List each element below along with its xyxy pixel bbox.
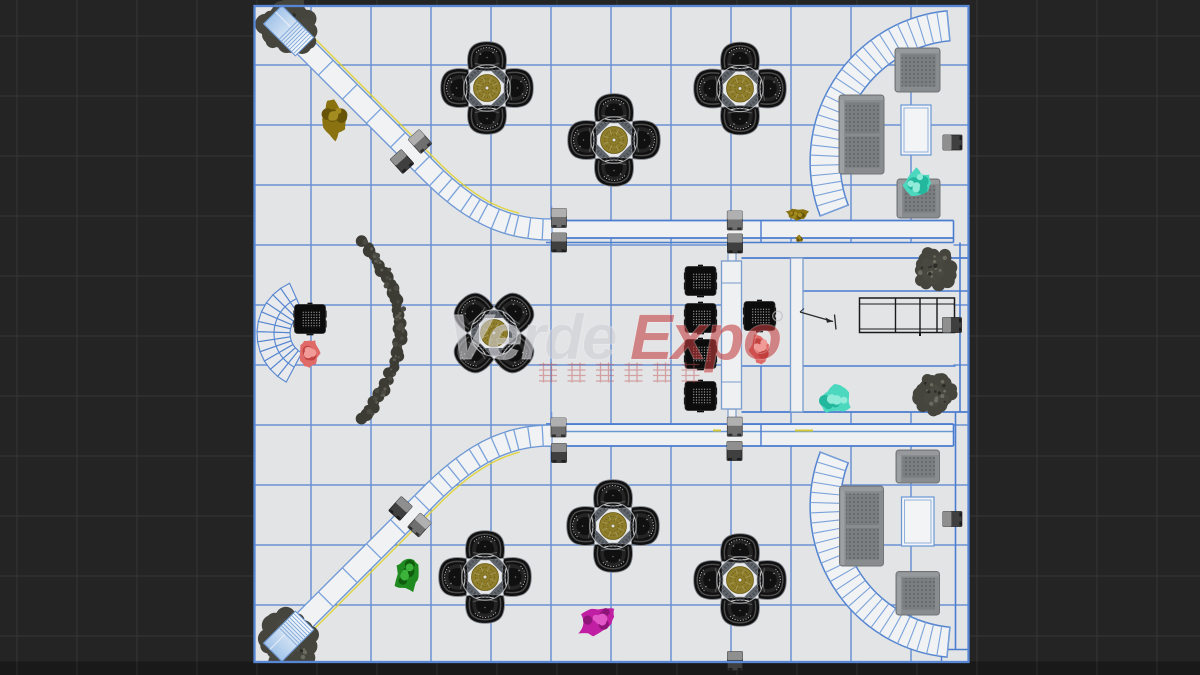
svg-text:VerdeExpo: VerdeExpo: [448, 301, 781, 373]
